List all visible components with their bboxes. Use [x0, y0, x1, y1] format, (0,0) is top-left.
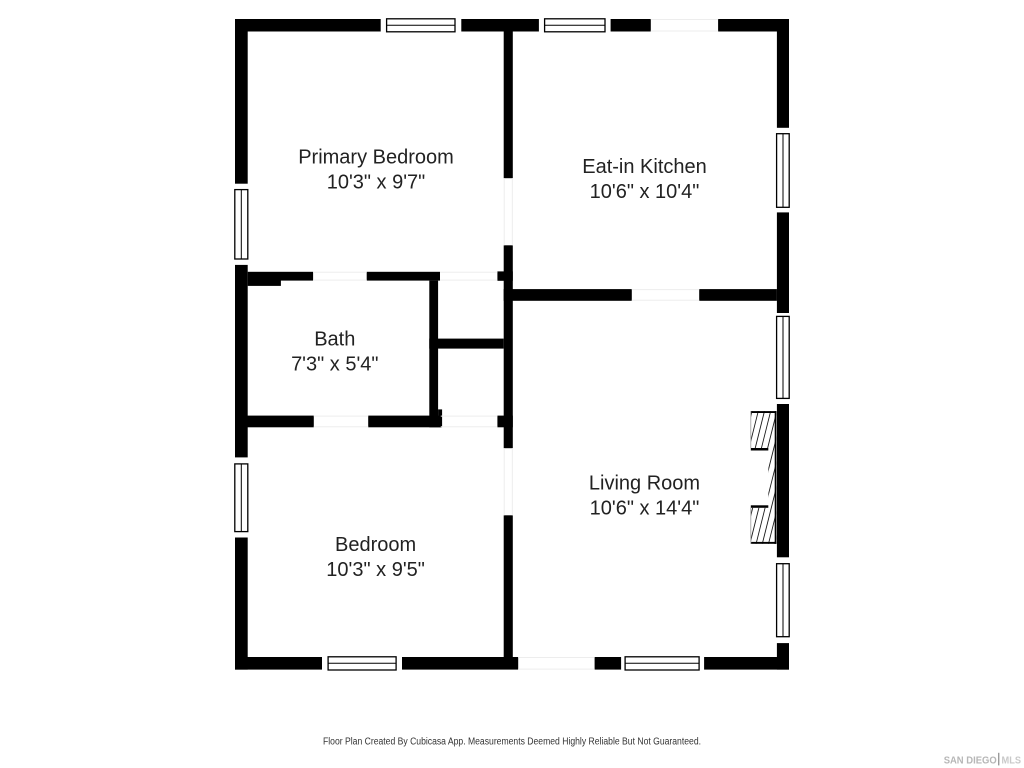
svg-text:7'3" x 5'4": 7'3" x 5'4": [291, 353, 378, 375]
svg-text:10'3" x 9'5": 10'3" x 9'5": [326, 559, 425, 581]
svg-text:Eat-in Kitchen: Eat-in Kitchen: [582, 156, 707, 178]
svg-text:SAN DIEGO: SAN DIEGO: [944, 756, 997, 767]
svg-text:Bedroom: Bedroom: [335, 534, 416, 556]
svg-text:Floor Plan Created By Cubicasa: Floor Plan Created By Cubicasa App. Meas…: [323, 737, 701, 748]
svg-text:10'6" x 14'4": 10'6" x 14'4": [590, 498, 700, 520]
svg-text:10'6" x 10'4": 10'6" x 10'4": [590, 181, 700, 203]
svg-text:MLS: MLS: [1002, 756, 1022, 767]
svg-text:Living Room: Living Room: [589, 473, 700, 495]
svg-text:Primary Bedroom: Primary Bedroom: [298, 146, 454, 168]
svg-text:10'3" x 9'7": 10'3" x 9'7": [327, 171, 426, 193]
svg-text:Bath: Bath: [314, 328, 355, 350]
